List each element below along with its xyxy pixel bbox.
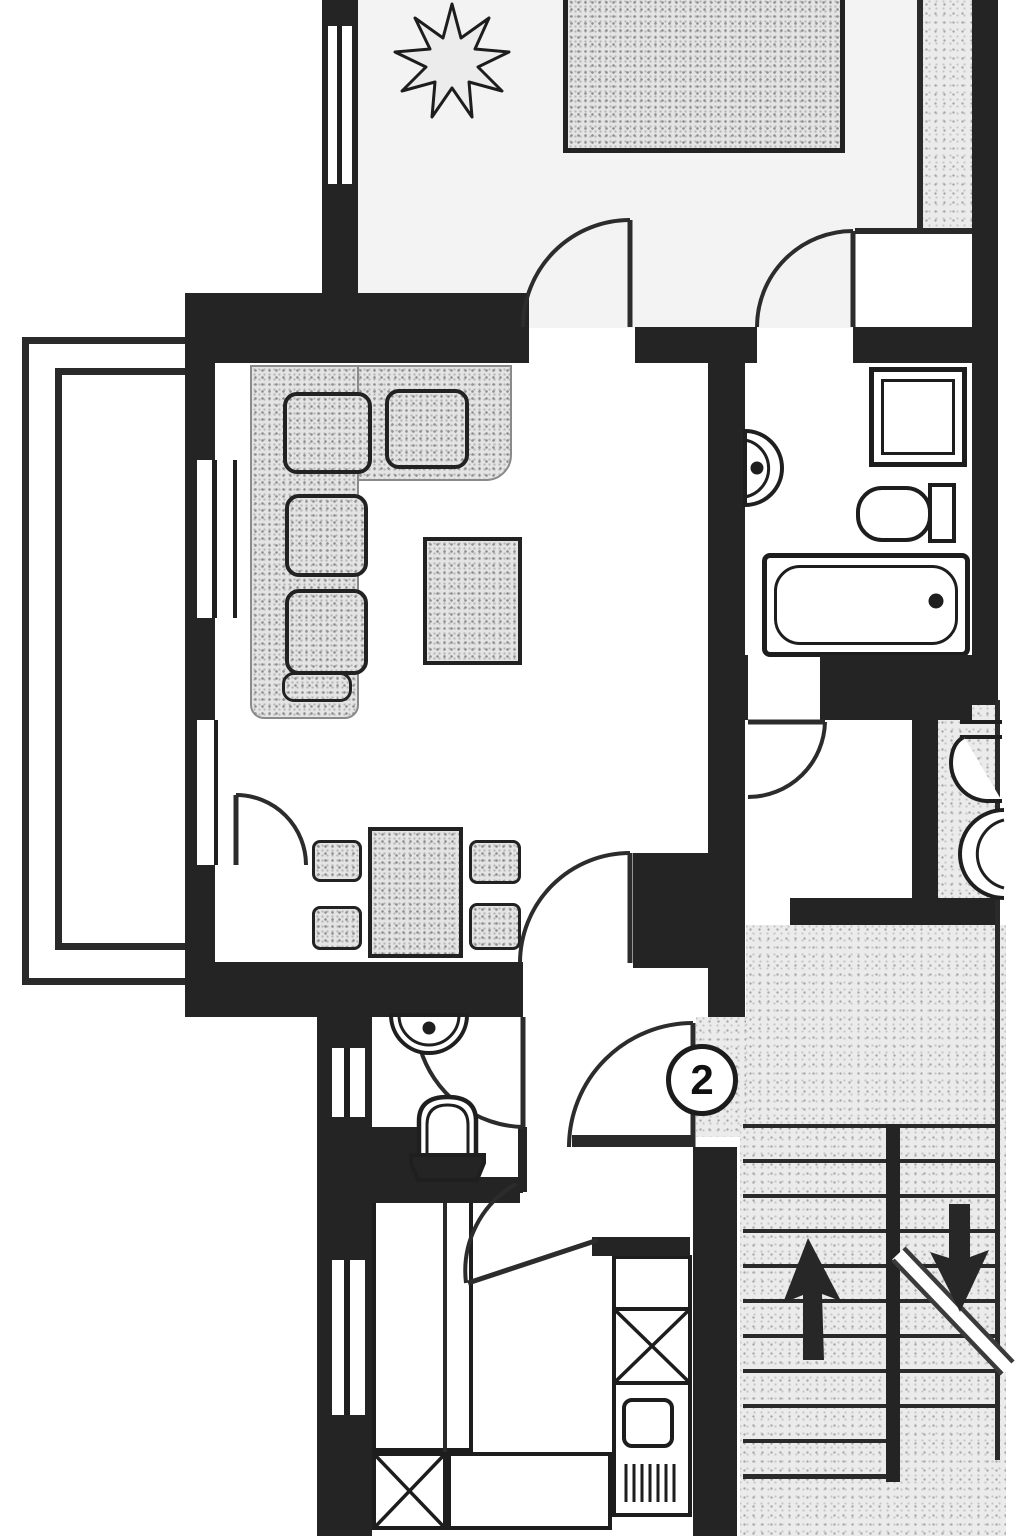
balcony-outer-rail <box>22 978 190 985</box>
stairwell-wall <box>693 1147 737 1536</box>
wc-sink-inner <box>399 1015 459 1045</box>
balcony-outer-rail <box>22 337 190 344</box>
kitchen-window-mullion <box>344 1260 350 1415</box>
dining-chair <box>469 840 521 884</box>
bathroom-door-arc <box>748 722 825 797</box>
wc-window-mullion <box>344 1048 350 1117</box>
balcony-inner-rail <box>55 943 190 950</box>
living-window-mullion <box>212 460 217 618</box>
wc-toilet-bowl-inner <box>427 1105 468 1158</box>
coffee-table <box>423 537 522 665</box>
stair-landing-floor <box>746 925 1006 1125</box>
sofa-end-cap <box>282 672 352 702</box>
stair-divider-wall <box>886 1124 900 1482</box>
kitchen-cabinet-x <box>612 1307 692 1385</box>
stair-tread <box>743 1229 888 1233</box>
stair-tread <box>743 1334 888 1338</box>
dining-chair <box>469 903 521 950</box>
neighbor-wc-floor <box>938 700 995 900</box>
hall-pillar <box>633 853 710 968</box>
balcony-inner-rail <box>55 368 190 375</box>
bedroom-bottom-wall <box>635 327 757 363</box>
balcony-door-arc <box>236 795 306 865</box>
stair-tread <box>900 1334 995 1338</box>
sofa-cushion <box>285 589 368 675</box>
stair-tread <box>743 1299 888 1303</box>
stair-tread <box>900 1404 995 1408</box>
stair-tread <box>743 1264 888 1268</box>
wc-duct <box>372 1127 417 1183</box>
stair-tread <box>743 1404 888 1408</box>
stair-tread <box>900 1124 995 1128</box>
living-door-arc <box>520 853 630 963</box>
kitchen-column-right <box>612 1255 692 1517</box>
sofa-cushion <box>385 389 469 469</box>
outer-right-wall <box>972 0 998 705</box>
kitchen-door-leaf <box>468 1240 598 1283</box>
stair-tread <box>743 1474 888 1479</box>
sofa-cushion <box>285 494 368 577</box>
stair-tread <box>900 1369 995 1373</box>
bathroom-bottom-wall <box>820 655 972 720</box>
unit-number: 2 <box>690 1056 713 1104</box>
kitchen-door-stub <box>592 1237 690 1256</box>
hall-threshold-line <box>572 1135 693 1147</box>
stair-tread <box>743 1194 888 1198</box>
bathroom-bottom-wall <box>708 655 748 720</box>
stair-tread <box>743 1124 888 1128</box>
vestibule-south-wall <box>790 898 995 925</box>
wc-sink <box>391 1015 467 1053</box>
bedroom-window-mullion <box>337 26 342 184</box>
stair-tread <box>900 1299 995 1303</box>
stair-tread <box>900 1229 995 1233</box>
stair-tread <box>900 1194 995 1198</box>
kitchen-counter-divider <box>443 1195 447 1452</box>
kitchen-top-wall <box>372 1180 520 1203</box>
bath-sink-faucet <box>753 464 762 473</box>
stair-tread <box>743 1159 888 1163</box>
bedroom-bottom-wall <box>185 293 529 363</box>
wc-door-arc <box>420 1048 523 1127</box>
sofa-cushion <box>283 392 372 474</box>
kitchen-counter-left <box>372 1195 473 1452</box>
kitchen-counter-bottom <box>447 1452 612 1530</box>
kitchen-stove <box>622 1398 674 1448</box>
stair-tread <box>743 1369 888 1373</box>
bath-sink <box>745 431 782 505</box>
toilet-bowl <box>856 486 932 542</box>
dining-chair <box>312 840 362 882</box>
balcony-inner-rail <box>55 368 62 950</box>
floor-plan: 2 <box>0 0 1024 1536</box>
niche-line <box>855 228 972 234</box>
balcony-outer-rail <box>22 337 29 985</box>
stair-tread <box>743 1439 888 1443</box>
bath-sink-inner <box>745 440 769 497</box>
corridor-line <box>917 0 923 230</box>
stair-tread <box>900 1159 995 1163</box>
wc-toilet-bowl <box>419 1097 476 1158</box>
toilet-tank <box>928 483 956 543</box>
living-window-sill <box>233 460 237 618</box>
dining-chair <box>312 906 362 950</box>
wc-sink-faucet <box>425 1024 434 1033</box>
stair-tread <box>900 1264 995 1268</box>
vestibule-east-wall <box>912 700 938 898</box>
corridor-strip-floor <box>922 0 972 229</box>
bathtub-inner <box>774 565 958 645</box>
shower-inner <box>881 379 955 455</box>
dining-table <box>368 827 463 958</box>
outer-right-edge <box>995 700 1000 1460</box>
kitchen-cabinet-x <box>372 1452 447 1530</box>
balcony-door-glazing <box>214 720 218 865</box>
unit-number-badge: 2 <box>666 1044 738 1116</box>
bathroom-top-wall <box>853 327 972 363</box>
living-left-wall <box>185 293 215 1017</box>
bedroom-rug <box>563 0 845 153</box>
